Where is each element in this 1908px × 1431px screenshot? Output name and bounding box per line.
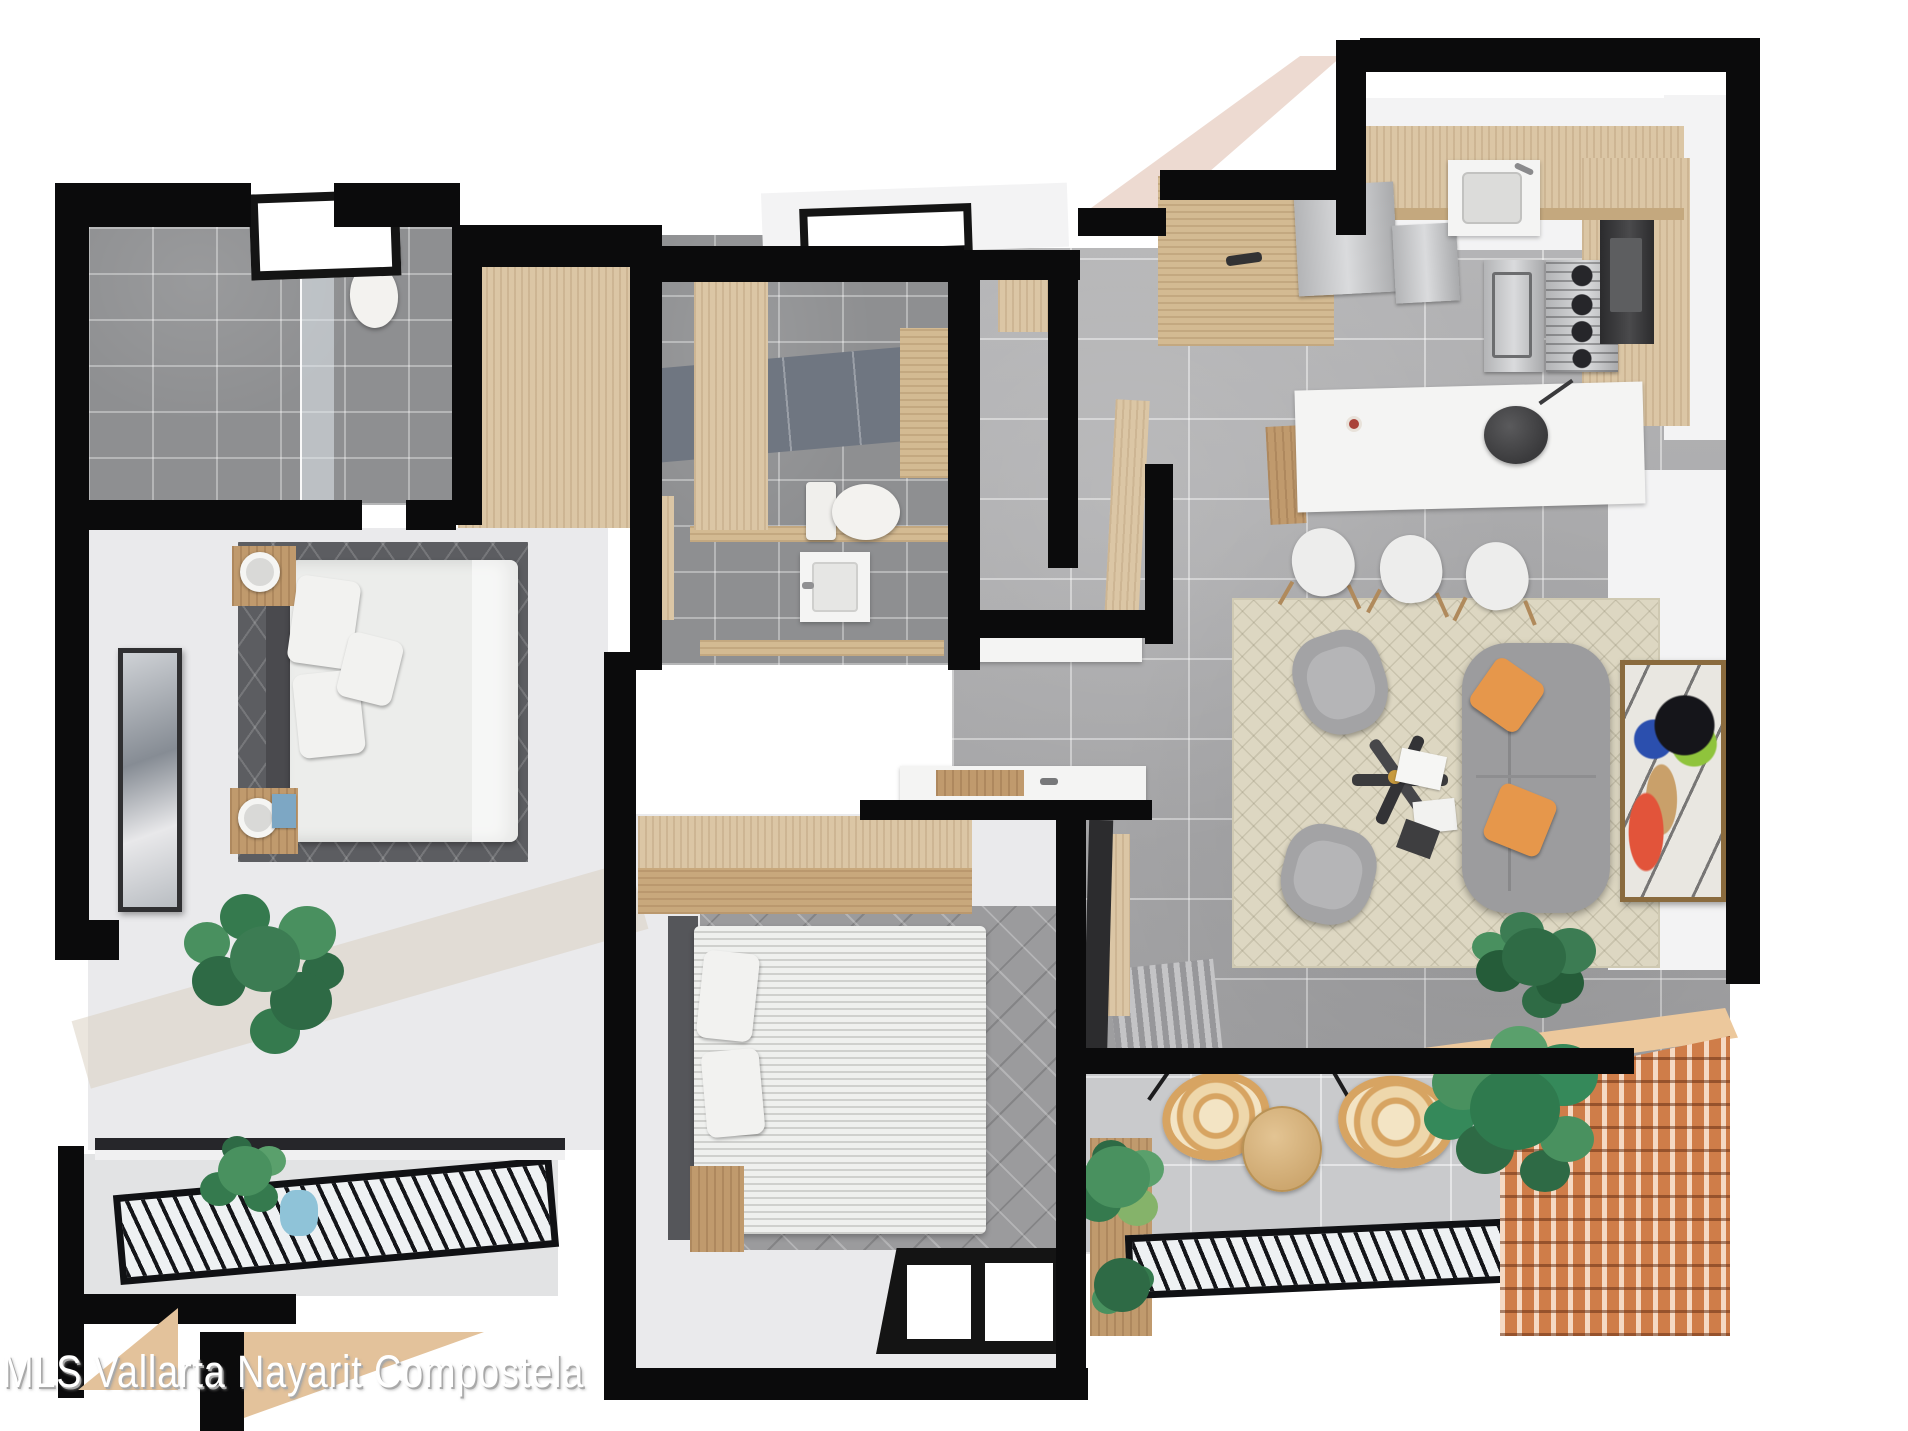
oven <box>1484 260 1544 372</box>
wall <box>1145 464 1173 644</box>
bedroom-wall-art <box>118 648 182 912</box>
toilet-bowl <box>832 484 900 540</box>
monstera-plant <box>230 926 300 992</box>
sofa-seam <box>1476 775 1596 778</box>
watermark-text: MLS Vallarta Nayarit Compostela <box>2 1346 584 1398</box>
sink-faucet <box>802 582 814 589</box>
wall <box>452 225 652 267</box>
wardrobe-top <box>638 816 972 870</box>
wall <box>1160 170 1348 200</box>
coffee-cup <box>1346 416 1362 432</box>
coffee-table <box>1340 720 1460 840</box>
hall-door-header-2 <box>700 640 944 656</box>
microwave-tower <box>1600 220 1654 344</box>
nightstand-lamp <box>240 552 280 592</box>
closet-floor <box>458 228 634 528</box>
kitchen-sink-basin <box>1462 172 1522 224</box>
terrace-round-table <box>1242 1106 1322 1192</box>
wall <box>452 225 482 525</box>
nightstand-book <box>272 794 296 828</box>
palm-plant <box>1470 1068 1560 1150</box>
second-bedroom-window <box>876 1248 1082 1354</box>
living-wall-art <box>1620 660 1726 902</box>
bed-pillow <box>700 1048 765 1139</box>
window-pane <box>985 1263 1053 1341</box>
sink-basin <box>812 562 858 612</box>
terrace-plant <box>1084 1146 1150 1208</box>
armchair-cushion <box>1288 835 1368 916</box>
wall <box>406 500 456 530</box>
living-plant <box>1502 928 1566 986</box>
wall <box>630 225 662 670</box>
microwave-screen <box>1610 238 1642 312</box>
entry-console-top <box>972 634 1142 662</box>
wall <box>860 800 1152 820</box>
floor-plan-render: MLS Vallarta Nayarit Compostela <box>0 0 1908 1431</box>
wall <box>948 250 980 670</box>
wall <box>1086 1048 1634 1074</box>
wall <box>55 183 89 959</box>
wall <box>1078 208 1166 236</box>
window-pane <box>907 1265 971 1339</box>
blue-plant-pot <box>280 1190 318 1236</box>
terrace-plant-small <box>1094 1258 1150 1312</box>
wall <box>636 1368 1088 1400</box>
vanity-faucet <box>1040 778 1058 785</box>
bathroom-wood-column <box>694 278 768 530</box>
vanity-counter <box>900 766 1146 804</box>
vanity-tray <box>936 770 1024 796</box>
oven-door-line <box>1492 272 1532 358</box>
kitchen-sink <box>1448 160 1540 236</box>
wall <box>334 183 460 227</box>
wall <box>604 652 636 1400</box>
kitchen-island-top <box>1294 381 1645 512</box>
bed-pillow <box>696 949 761 1042</box>
wall <box>1048 252 1078 568</box>
balcony-pothos-plant <box>218 1146 272 1196</box>
wall <box>1726 38 1760 984</box>
bathroom-sink <box>800 552 870 622</box>
wall <box>958 610 1170 638</box>
wall <box>55 920 119 960</box>
balcony-door-frame <box>95 1138 565 1150</box>
nightstand <box>690 1166 744 1252</box>
wall <box>88 500 362 530</box>
bathroom-wood-shelf <box>900 328 952 478</box>
armchair-cushion <box>1299 640 1382 726</box>
duvet-fold <box>472 560 518 842</box>
wall <box>1360 38 1734 72</box>
wall <box>642 246 964 282</box>
wardrobe-shelf <box>638 868 972 914</box>
balcony-door-sill <box>95 1150 565 1160</box>
wall <box>1056 816 1086 1374</box>
island-pendant-hood <box>1484 406 1548 464</box>
